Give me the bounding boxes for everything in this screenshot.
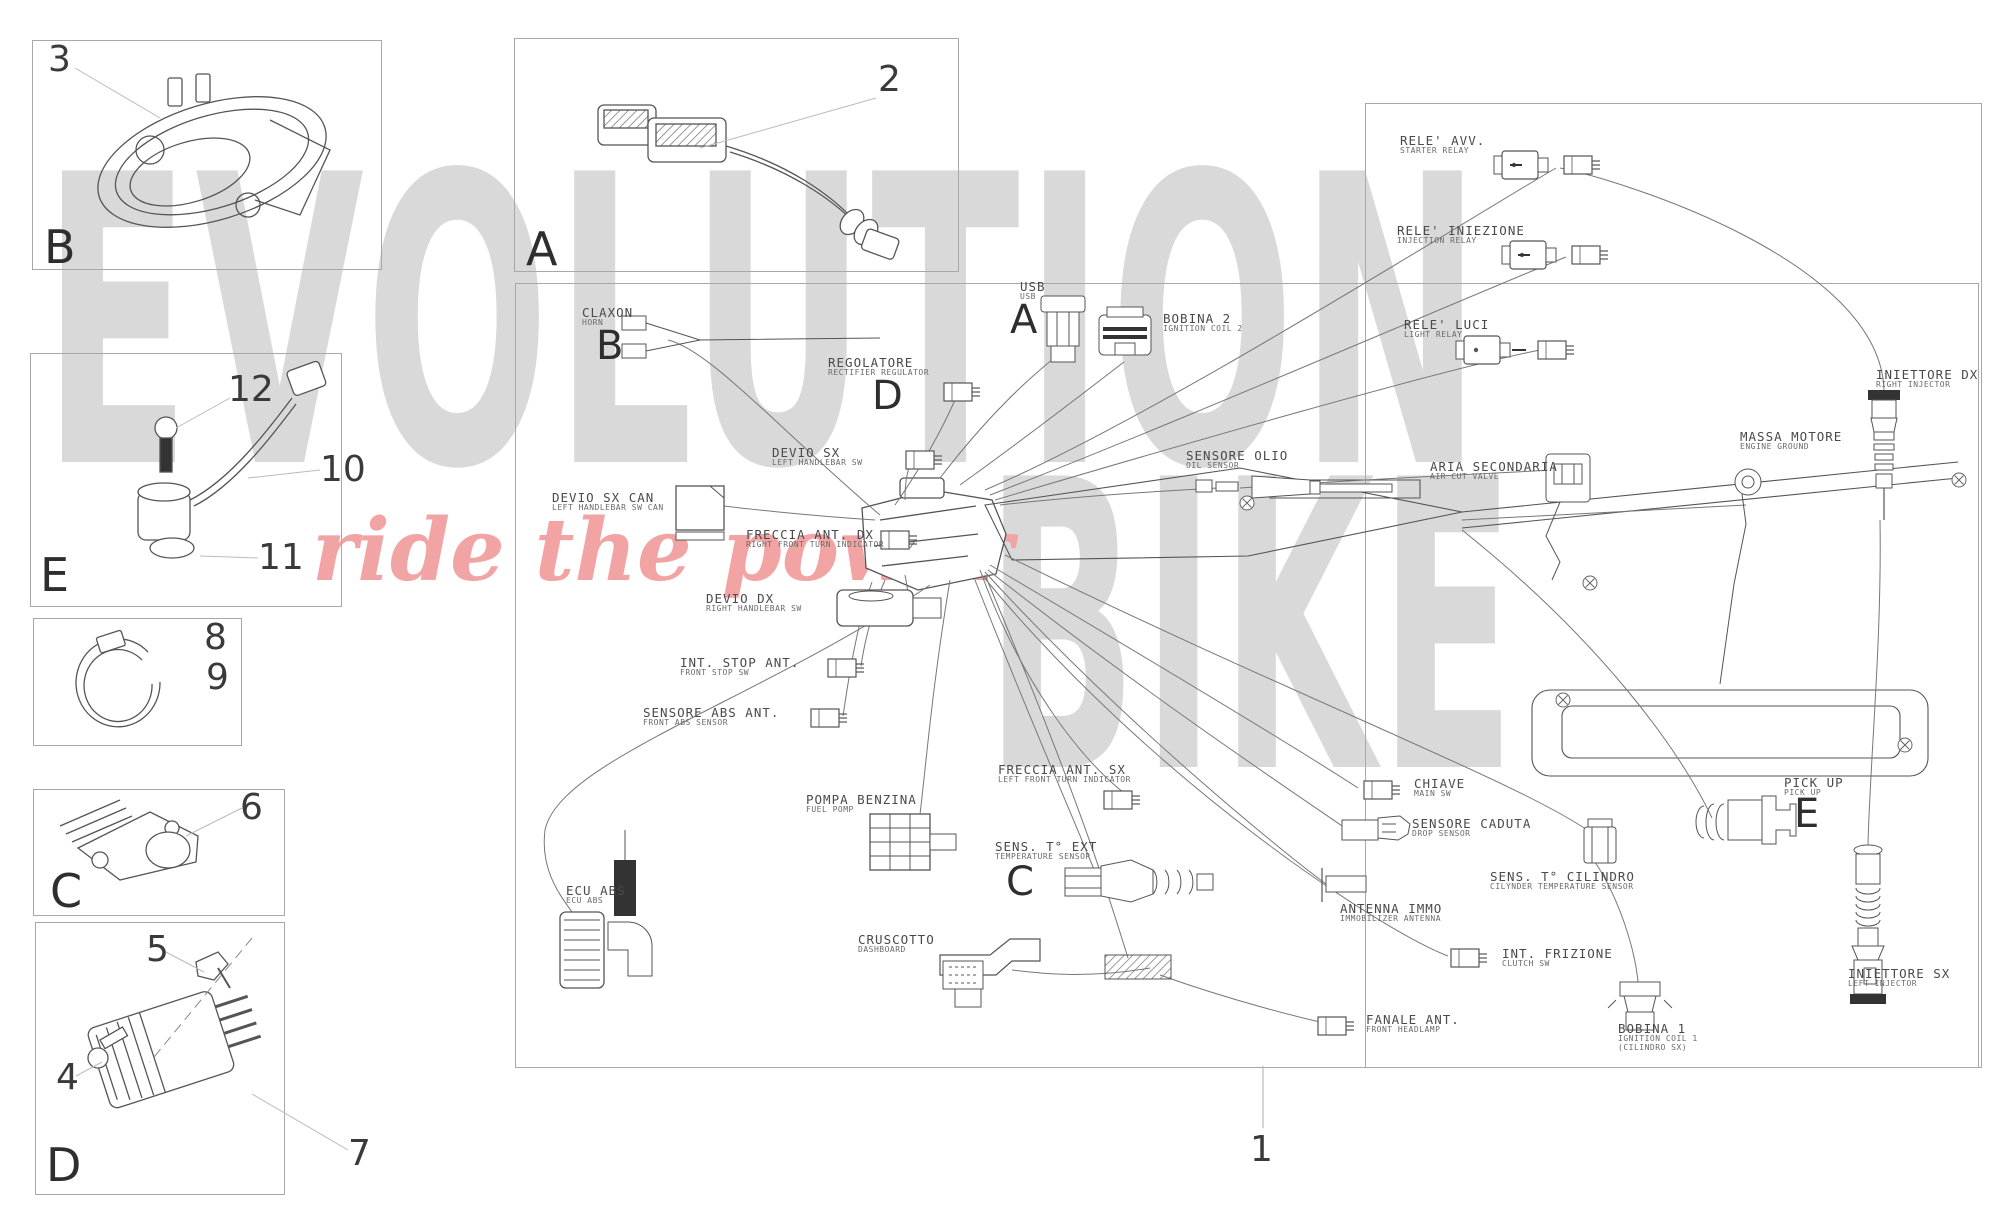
label-sensore-caduta: SENSORE CADUTADROP SENSOR (1412, 817, 1531, 839)
callout-1: 1 (1250, 1132, 1273, 1168)
wiring-artwork (0, 0, 2000, 1220)
label-fanale-ant: FANALE ANT.FRONT HEADLAMP (1366, 1013, 1460, 1035)
panel-e-letter: E (40, 552, 69, 598)
label-sens-t-ext: SENS. T° EXTTEMPERATURE SENSOR (995, 840, 1097, 862)
label-chiave: CHIAVEMAIN SW (1414, 777, 1465, 799)
label-devio-dx: DEVIO DXRIGHT HANDLEBAR SW (706, 592, 802, 614)
label-int-stop: INT. STOP ANT.FRONT STOP SW (680, 656, 799, 678)
callout-8: 8 (204, 620, 227, 656)
callout-12: 12 (228, 372, 274, 408)
label-ecu-abs: ECU ABSECU ABS (566, 884, 626, 906)
callout-2: 2 (878, 62, 901, 98)
label-pick-up: PICK UPPICK UP (1784, 776, 1844, 798)
callout-4: 4 (56, 1060, 79, 1096)
marker-b: B (596, 326, 623, 366)
callout-11: 11 (258, 540, 304, 576)
panel-d-letter: D (46, 1142, 81, 1188)
label-iniettore-sx: INIETTORE SXLEFT INJECTOR (1848, 967, 1950, 989)
label-bobina2: BOBINA 2IGNITION COIL 2 (1163, 312, 1243, 334)
callout-6: 6 (240, 790, 263, 826)
label-rele-avv: RELE' AVV.STARTER RELAY (1400, 134, 1485, 156)
panel-a-letter: A (526, 226, 557, 272)
callout-7: 7 (348, 1136, 371, 1172)
label-iniettore-dx: INIETTORE DXRIGHT INJECTOR (1876, 368, 1978, 390)
panel-b-letter: B (44, 224, 76, 270)
marker-e: E (1794, 794, 1819, 834)
label-claxon: CLAXONHORN (582, 306, 633, 328)
label-rele-luci: RELE' LUCILIGHT RELAY (1404, 318, 1489, 340)
marker-d: D (872, 376, 903, 416)
label-devio-sx-can: DEVIO SX CANLEFT HANDLEBAR SW CAN (552, 491, 664, 513)
marker-a: A (1010, 300, 1037, 340)
label-pompa-benzina: POMPA BENZINAFUEL POMP (806, 793, 917, 815)
label-freccia-dx: FRECCIA ANT. DXRIGHT FRONT TURN INDICATO… (746, 528, 884, 550)
label-devio-sx: DEVIO SXLEFT HANDLEBAR SW (772, 446, 862, 468)
panel-c-letter: C (50, 868, 82, 914)
label-abs: SENSORE ABS ANT.FRONT ABS SENSOR (643, 706, 779, 728)
label-rele-iniezione: RELE' INIEZIONEINJECTION RELAY (1397, 224, 1525, 246)
label-usb: USBUSB (1020, 280, 1046, 302)
label-aria-secondaria: ARIA SECONDARIAAIR CUT VALVE (1430, 460, 1558, 482)
label-massa-motore: MASSA MOTOREENGINE GROUND (1740, 430, 1842, 452)
label-freccia-sx: FRECCIA ANT. SXLEFT FRONT TURN INDICATOR (998, 763, 1131, 785)
label-sens-t-cilindro: SENS. T° CILINDROCILYNDER TEMPERATURE SE… (1490, 870, 1635, 892)
callout-3: 3 (48, 42, 71, 78)
label-cruscotto: CRUSCOTTODASHBOARD (858, 933, 935, 955)
marker-c: C (1006, 862, 1034, 902)
callout-10: 10 (320, 452, 366, 488)
label-bobina1: BOBINA 1IGNITION COIL 1(CILINDRO SX) (1618, 1022, 1698, 1052)
callout-5: 5 (146, 932, 169, 968)
callout-9: 9 (206, 660, 229, 696)
label-sensore-olio: SENSORE OLIOOIL SENSOR (1186, 449, 1288, 471)
parts-diagram-page: EVOLUTION BIKE ride the power (0, 0, 2000, 1220)
label-regolatore: REGOLATORERECTIFIER REGULATOR (828, 356, 929, 378)
label-int-frizione: INT. FRIZIONECLUTCH SW (1502, 947, 1613, 969)
label-antenna-immo: ANTENNA IMMOIMMOBILIZER ANTENNA (1340, 902, 1442, 924)
